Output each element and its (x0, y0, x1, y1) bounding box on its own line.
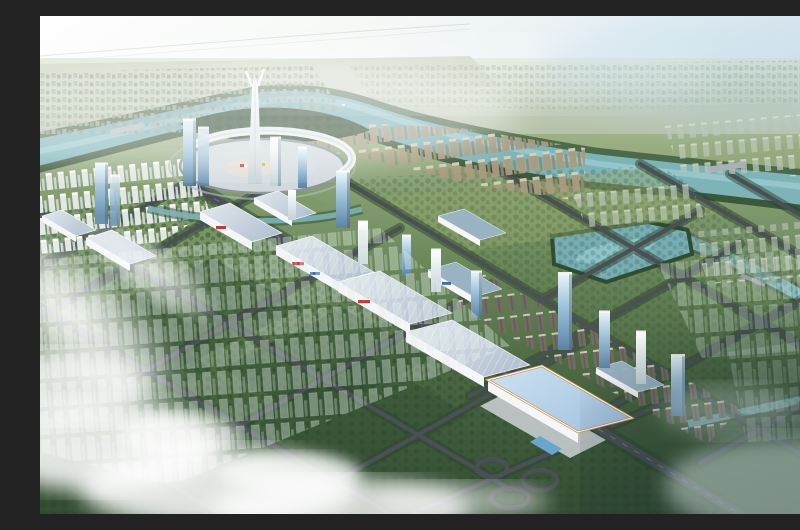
glass-tower (471, 271, 482, 319)
dark-mist-corner (580, 306, 800, 514)
glass-tower (336, 171, 350, 229)
white-tower (288, 190, 296, 220)
glass-tower (95, 163, 108, 225)
glass-tower (110, 175, 120, 227)
glass-tower (558, 272, 572, 350)
rendering-canvas (40, 16, 800, 514)
aerial-city-rendering (40, 16, 800, 514)
